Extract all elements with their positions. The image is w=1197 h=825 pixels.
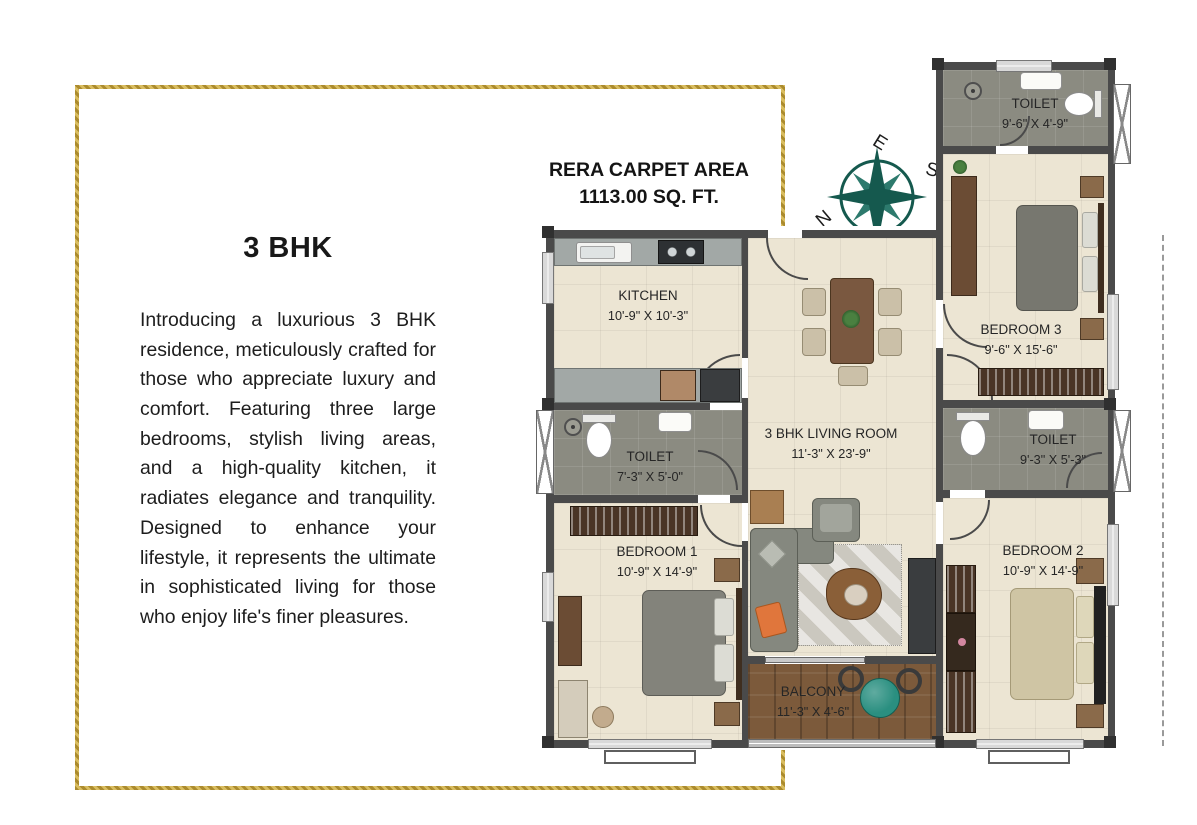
desk-chair <box>592 706 614 728</box>
wardrobe <box>570 506 698 536</box>
wall <box>748 230 768 238</box>
dining-chair <box>802 328 826 356</box>
wall-pillar <box>1104 398 1116 410</box>
window <box>996 60 1052 72</box>
dining-chair <box>878 328 902 356</box>
room-name: TOILET <box>565 447 735 468</box>
room-label-toilet-c: TOILET 9'-3" X 5'-3" <box>968 430 1138 471</box>
description-text: Introducing a luxurious 3 BHK residence,… <box>140 306 436 633</box>
wall <box>546 403 710 410</box>
desk <box>558 680 588 738</box>
plant-icon <box>842 310 860 328</box>
page-title: 3 BHK <box>140 232 436 265</box>
window-sill <box>604 750 696 764</box>
wall <box>985 490 1115 498</box>
room-label-bedroom-2: BEDROOM 2 10'-9" X 14'-9" <box>958 541 1128 582</box>
bed <box>1016 205 1078 311</box>
pillow <box>1076 642 1094 684</box>
floor-plan: KITCHEN 10'-9" X 10'-3" TOILET 7'-3" X 5… <box>530 58 1142 764</box>
room-dims: 10'-9" X 14'-9" <box>572 563 742 583</box>
room-name: BEDROOM 2 <box>958 541 1128 562</box>
room-name: KITCHEN <box>563 286 733 307</box>
study-desk <box>951 176 977 296</box>
room-dims: 11'-3" X 23'-9" <box>746 445 916 465</box>
wall-pillar <box>542 736 554 748</box>
wall <box>936 348 943 502</box>
bed-headboard <box>1098 203 1104 313</box>
duct-shaft <box>536 410 554 494</box>
room-name: BEDROOM 3 <box>936 320 1106 341</box>
room-name: BALCONY <box>728 682 898 703</box>
window <box>542 252 554 304</box>
pillow <box>714 644 734 682</box>
wall <box>936 544 943 748</box>
dresser <box>558 596 582 666</box>
wardrobe <box>978 368 1104 396</box>
boundary-dashed-line <box>1162 235 1164 746</box>
bed <box>1010 588 1074 700</box>
room-label-bedroom-1: BEDROOM 1 10'-9" X 14'-9" <box>572 542 742 583</box>
wall <box>936 62 943 300</box>
room-label-toilet-a: TOILET 7'-3" X 5'-0" <box>565 447 735 488</box>
room-label-kitchen: KITCHEN 10'-9" X 10'-3" <box>563 286 733 327</box>
side-table <box>750 490 784 524</box>
room-dims: 11'-3" X 4'-6" <box>728 703 898 723</box>
room-name: BEDROOM 1 <box>572 542 742 563</box>
stove-icon <box>658 240 704 264</box>
wall-pillar <box>932 58 944 70</box>
nightstand <box>1076 704 1104 728</box>
coffee-table <box>826 568 882 620</box>
wall <box>936 400 1115 408</box>
armchair-cushion <box>820 504 852 532</box>
wall <box>802 230 943 238</box>
room-name: 3 BHK LIVING ROOM <box>746 424 916 445</box>
kitchen-sink <box>576 242 632 263</box>
nightstand <box>1080 176 1104 198</box>
room-label-bedroom-3: BEDROOM 3 9'-6" X 15'-6" <box>936 320 1106 361</box>
bathroom-sink <box>1028 410 1064 430</box>
cutting-board <box>660 370 696 401</box>
window <box>1107 294 1119 390</box>
shower-icon <box>564 418 582 436</box>
wall-pillar <box>542 226 554 238</box>
wall <box>865 656 943 664</box>
dining-chair <box>802 288 826 316</box>
bathroom-sink <box>658 412 692 432</box>
balcony-door-threshold <box>765 657 865 663</box>
room-dims: 7'-3" X 5'-0" <box>565 468 735 488</box>
pillow <box>1082 212 1098 248</box>
wall-pillar <box>542 398 554 410</box>
room-name: TOILET <box>950 94 1120 115</box>
bathroom-sink <box>1020 72 1062 90</box>
brochure-page: { "brochure": { "title": "3 BHK", "descr… <box>0 0 1197 825</box>
room-dims: 9'-6" X 15'-6" <box>936 341 1106 361</box>
plant-icon <box>953 160 967 174</box>
room-dims: 9'-6" X 4'-9" <box>950 115 1120 135</box>
room-label-living: 3 BHK LIVING ROOM 11'-3" X 23'-9" <box>746 424 916 465</box>
pillow <box>714 598 734 636</box>
pillow <box>1076 596 1094 638</box>
room-label-toilet-b: TOILET 9'-6" X 4'-9" <box>950 94 1120 135</box>
wall <box>936 146 996 154</box>
wall <box>1028 146 1115 154</box>
tv-unit <box>908 558 936 654</box>
wall <box>546 495 698 503</box>
wall-pillar <box>1104 58 1116 70</box>
room-dims: 10'-9" X 14'-9" <box>958 562 1128 582</box>
dining-chair <box>878 288 902 316</box>
room-name: TOILET <box>968 430 1138 451</box>
balcony-railing <box>748 739 936 748</box>
wall <box>748 656 765 664</box>
room-label-balcony: BALCONY 11'-3" X 4'-6" <box>728 682 898 723</box>
dining-chair <box>838 366 868 386</box>
window-sill <box>988 750 1070 764</box>
window <box>976 739 1084 749</box>
wall <box>546 230 748 238</box>
console-knob <box>958 638 966 646</box>
pillow <box>1082 256 1098 292</box>
window <box>588 739 712 749</box>
kitchen-appliance <box>700 369 740 402</box>
wall-pillar <box>1104 736 1116 748</box>
wall <box>742 230 748 358</box>
window <box>542 572 554 622</box>
bed-headboard <box>1094 586 1106 704</box>
balcony-chair <box>896 668 922 694</box>
wardrobe <box>946 671 976 733</box>
room-dims: 9'-3" X 5'-3" <box>968 451 1138 471</box>
room-dims: 10'-9" X 10'-3" <box>563 307 733 327</box>
